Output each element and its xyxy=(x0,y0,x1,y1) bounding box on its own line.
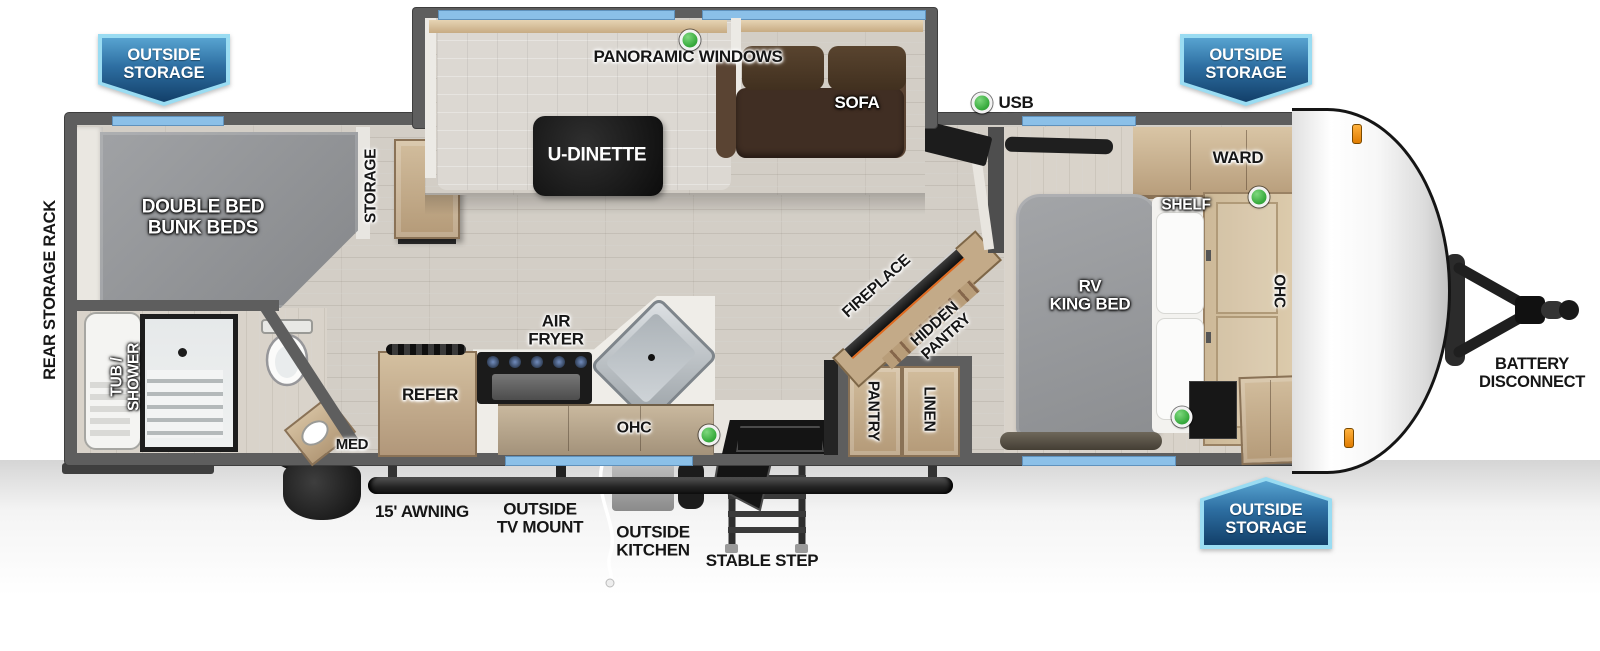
refer-label: REFER xyxy=(402,386,458,404)
hitch-a-frame xyxy=(1443,248,1583,372)
sofa-label: SOFA xyxy=(834,94,879,112)
sofa-armrest-left xyxy=(716,56,736,158)
stable-step-ladder xyxy=(714,452,818,554)
outside-storage-badge-top-right: OUTSIDE STORAGE xyxy=(1180,34,1312,106)
kitchen-ohc-seam xyxy=(568,406,569,451)
kitchen-window xyxy=(505,456,693,466)
slideout-shadow xyxy=(425,193,925,215)
bedroom-ohc-hinge xyxy=(1206,332,1211,343)
bed-pillow xyxy=(1156,212,1204,314)
ward-label: WARD xyxy=(1213,149,1264,167)
outside-kitchen-label: OUTSIDE KITCHEN xyxy=(616,524,689,561)
refrigerator-coil xyxy=(386,344,466,355)
sofa-valance xyxy=(741,20,923,32)
entry-door-mat-inner xyxy=(736,426,824,452)
outside-storage-badge-bottom-right: OUTSIDE STORAGE xyxy=(1200,477,1332,549)
awning-label: 15' AWNING xyxy=(375,503,469,521)
bunk-beds-label: DOUBLE BED BUNK BEDS xyxy=(142,197,265,238)
panoramic-windows-label: PANORAMIC WINDOWS xyxy=(593,48,782,66)
shelf-label: SHELF xyxy=(1161,198,1210,215)
usb-dot-shelf xyxy=(1249,187,1270,208)
bedroom-tv xyxy=(1005,137,1113,155)
front-cap xyxy=(1292,108,1451,474)
pantry-corner-panel xyxy=(824,360,838,455)
kitchen-sink-drain xyxy=(648,354,655,361)
usb-dot-panoramic-windows xyxy=(680,30,701,51)
badge-label: OUTSIDE STORAGE xyxy=(114,46,214,83)
badge-label: OUTSIDE STORAGE xyxy=(1196,46,1296,83)
battery-disconnect-label: BATTERY DISCONNECT xyxy=(1479,356,1585,392)
marker-light-bottom xyxy=(1344,428,1354,448)
badge-border: OUTSIDE STORAGE xyxy=(98,34,230,106)
stable-step-label: STABLE STEP xyxy=(706,552,819,570)
badge-border: OUTSIDE STORAGE xyxy=(1200,477,1332,549)
slideout-window-left xyxy=(438,10,675,20)
usb-dot-kitchen xyxy=(699,425,720,446)
range-oven-drawer xyxy=(492,374,580,400)
bedroom-bottom-window xyxy=(1022,456,1176,466)
awning-tube xyxy=(368,477,953,494)
bedroom-dresser-dark xyxy=(1190,382,1236,438)
bathroom-top-wall xyxy=(77,300,279,311)
badge-border: OUTSIDE STORAGE xyxy=(1180,34,1312,106)
range-burner xyxy=(487,356,499,368)
rv-king-bed xyxy=(1016,194,1158,436)
bedroom-wardrobe-door-seam xyxy=(1270,380,1271,456)
range-burner xyxy=(531,356,543,368)
bed-foot-bench xyxy=(1000,432,1162,450)
bunkroom-wall-lining xyxy=(77,127,103,307)
range-burner xyxy=(575,356,587,368)
ward-seam xyxy=(1190,130,1191,190)
tub-shower-label: TUB / SHOWER xyxy=(109,343,142,411)
rear-tank-drum xyxy=(283,466,361,520)
bedroom-ohc-label: OHC xyxy=(1270,274,1287,308)
usb-label: USB xyxy=(999,94,1034,112)
kitchen-ohc xyxy=(498,404,714,455)
rear-storage-rack-label: REAR STORAGE RACK xyxy=(42,200,60,380)
shower-head-dot xyxy=(178,348,187,357)
badge-label: OUTSIDE STORAGE xyxy=(1216,501,1316,538)
bedroom-ohc-hinge xyxy=(1206,250,1211,261)
marker-light-top xyxy=(1352,124,1362,144)
slideout-left-lining xyxy=(425,18,436,178)
rv-king-bed-label: RV KING BED xyxy=(1050,278,1131,315)
bedroom-top-window xyxy=(1022,116,1136,126)
linen-label: LINEN xyxy=(920,386,937,431)
bunkroom-window xyxy=(112,116,224,126)
usb-dot-sofa xyxy=(972,93,993,114)
bunk-storage-label: STORAGE xyxy=(364,149,381,223)
range-burner xyxy=(509,356,521,368)
pantry-label: PANTRY xyxy=(864,381,881,441)
outside-storage-badge-top-left: OUTSIDE STORAGE xyxy=(98,34,230,106)
usb-dot-bedroom xyxy=(1172,407,1193,428)
sofa-back-cushion xyxy=(828,46,906,90)
air-fryer-label: AIR FRYER xyxy=(528,313,584,350)
med-cabinet-label: MED xyxy=(336,437,368,453)
u-dinette-label: U-DINETTE xyxy=(548,146,647,167)
shower-glass-slats xyxy=(147,370,223,438)
floorplan-diagram: PANORAMIC WINDOWS SOFA U-DINETTE USB WAR… xyxy=(0,0,1600,651)
kitchen-ohc-label: OHC xyxy=(617,419,652,436)
outside-tv-mount-label: OUTSIDE TV MOUNT xyxy=(497,501,583,538)
range-burner xyxy=(553,356,565,368)
